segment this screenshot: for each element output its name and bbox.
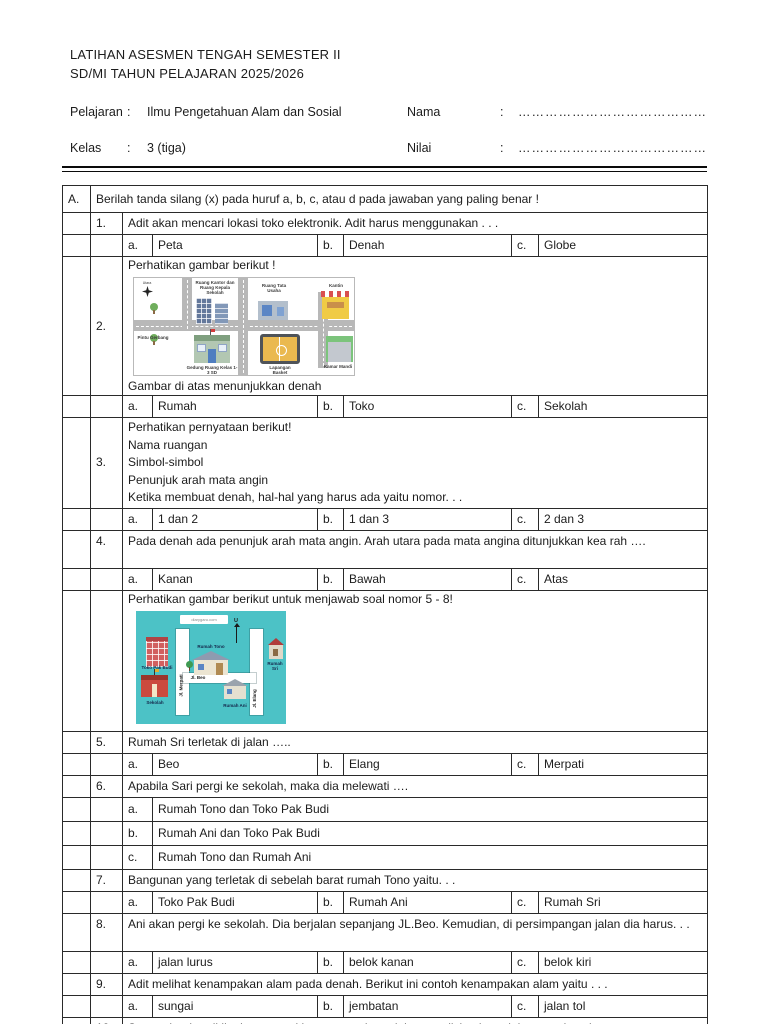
question-row: 6. Apabila Sari pergi ke sekolah, maka d…	[63, 775, 708, 797]
compass-icon: Utara	[140, 281, 154, 298]
document-title-line1: LATIHAN ASESMEN TENGAH SEMESTER II	[70, 45, 707, 64]
question-number: 5.	[91, 731, 123, 753]
options-row: a. Toko Pak Budi b. Rumah Ani c. Rumah S…	[63, 891, 708, 913]
option-text: 1 dan 3	[344, 508, 512, 530]
question-text: Gambar di atas menunjukkan denah	[128, 379, 702, 394]
question-row: 2. Perhatikan gambar berikut ! Utara Rua…	[63, 257, 708, 396]
options-row: a. Rumah Tono dan Toko Pak Budi	[63, 797, 708, 821]
colon: :	[127, 139, 147, 157]
options-row: c. Rumah Tono dan Rumah Ani	[63, 845, 708, 869]
section-row: A. Berilah tanda silang (x) pada huruf a…	[63, 186, 708, 213]
cell-spacer	[63, 775, 91, 797]
option-letter: b.	[318, 995, 344, 1017]
kelas-value: 3 (tiga)	[147, 139, 369, 157]
cell-spacer	[63, 396, 91, 418]
kelas-label: Kelas	[70, 139, 127, 157]
document-title-line2: SD/MI TAHUN PELAJARAN 2025/2026	[70, 64, 707, 83]
cell-spacer	[91, 845, 123, 869]
question-text: Adit akan mencari lokasi toko elektronik…	[123, 213, 708, 235]
cell-spacer	[91, 797, 123, 821]
street-map-image: diarygaru.com U Jl. Merpati Jl. Beo Jl. …	[136, 611, 286, 724]
cell-spacer	[91, 753, 123, 775]
option-text: Sekolah	[539, 396, 708, 418]
cell-spacer	[63, 590, 91, 731]
option-letter: a.	[123, 235, 153, 257]
question-number: 3.	[91, 418, 123, 509]
option-text: Beo	[153, 753, 318, 775]
option-text: Denah	[344, 235, 512, 257]
cell-spacer	[63, 995, 91, 1017]
option-text: Kanan	[153, 568, 318, 590]
section-instruction: Berilah tanda silang (x) pada huruf a, b…	[91, 186, 708, 213]
cell-spacer	[63, 753, 91, 775]
admin-label: Ruang Tata Usaha	[256, 283, 292, 293]
passage-row: Perhatikan gambar berikut untuk menjawab…	[63, 590, 708, 731]
option-text: Rumah Tono dan Rumah Ani	[153, 845, 708, 869]
question-text: Apabila Sari pergi ke sekolah, maka dia …	[123, 775, 708, 797]
admin-building	[258, 301, 288, 320]
question-number: 7.	[91, 869, 123, 891]
question-number: 9.	[91, 973, 123, 995]
options-row: b. Rumah Ani dan Toko Pak Budi	[63, 821, 708, 845]
shop-label: Toko Pak Budi	[140, 665, 174, 670]
road	[182, 278, 192, 331]
option-text: sungai	[153, 995, 318, 1017]
cell-spacer	[91, 396, 123, 418]
office-label: Ruang Kantor dan Ruang Kepala Sekolah	[192, 280, 238, 295]
question-body: Perhatikan pernyataan berikut! Nama ruan…	[123, 418, 708, 509]
question-row: 5. Rumah Sri terletak di jalan …..	[63, 731, 708, 753]
question-number: 10.	[91, 1017, 123, 1024]
cell-spacer	[63, 508, 91, 530]
question-text: Perhatikan gambar berikut !	[128, 258, 702, 273]
question-text-line: Simbol-simbol	[128, 454, 702, 472]
option-letter: c.	[123, 845, 153, 869]
cell-spacer	[63, 845, 91, 869]
compass-star-icon	[142, 286, 153, 297]
option-text: 2 dan 3	[539, 508, 708, 530]
option-text: jalan lurus	[153, 951, 318, 973]
cell-spacer	[91, 235, 123, 257]
pelajaran-label: Pelajaran	[70, 103, 127, 121]
classroom-building	[194, 335, 230, 363]
question-row: 3. Perhatikan pernyataan berikut! Nama r…	[63, 418, 708, 509]
nama-label: Nama	[407, 103, 500, 121]
question-text: Adit melihat kenampakan alam pada denah.…	[123, 973, 708, 995]
colon: :	[127, 103, 147, 121]
question-number: 1.	[91, 213, 123, 235]
house-sri-label: Rumah Sri	[265, 661, 285, 671]
option-letter: a.	[123, 508, 153, 530]
classroom-label: Gedung Ruang Kelas 1-3 SD	[186, 365, 238, 375]
colon: :	[500, 139, 518, 157]
cell-spacer	[63, 951, 91, 973]
option-letter: c.	[512, 995, 539, 1017]
question-text-line: Penunjuk arah mata angin	[128, 472, 702, 490]
option-text: jembatan	[344, 995, 512, 1017]
options-row: a. Peta b. Denah c. Globe	[63, 235, 708, 257]
court-label: Lapangan Basket	[262, 365, 298, 375]
question-body: Perhatikan gambar berikut ! Utara Ruang …	[123, 257, 708, 396]
option-letter: c.	[512, 753, 539, 775]
option-text: Rumah	[153, 396, 318, 418]
question-text: Pada denah ada penunjuk arah mata angin.…	[123, 530, 708, 568]
cell-spacer	[91, 821, 123, 845]
road-merpati	[176, 629, 189, 715]
header-meta-left: Pelajaran : Ilmu Pengetahuan Alam dan So…	[70, 103, 369, 157]
tree-icon	[186, 661, 193, 668]
option-letter: b.	[318, 891, 344, 913]
question-text: Bangunan yang terletak di sebelah barat …	[123, 869, 708, 891]
option-text: belok kiri	[539, 951, 708, 973]
header-meta-right: Nama : ……………………………………. Nilai : …………………………	[407, 103, 707, 157]
question-text: Semua bagian di lingkungan sekitar yang …	[123, 1017, 708, 1024]
cell-spacer	[63, 973, 91, 995]
cell-spacer	[63, 891, 91, 913]
option-letter: b.	[318, 508, 344, 530]
option-text: Rumah Ani	[344, 891, 512, 913]
canteen-label: Kantin	[324, 283, 348, 288]
option-letter: c.	[512, 396, 539, 418]
cell-spacer	[91, 590, 123, 731]
road-merpati-label: Jl. Merpati	[179, 674, 184, 696]
house-tono	[192, 651, 230, 675]
shop-building	[146, 637, 168, 667]
bathroom-label: Kamar Mandi	[322, 364, 354, 369]
options-row: a. Kanan b. Bawah c. Atas	[63, 568, 708, 590]
road-elang-label: Jl. Elang	[252, 689, 257, 708]
option-text: Elang	[344, 753, 512, 775]
cell-spacer	[63, 568, 91, 590]
question-text-line: Nama ruangan	[128, 437, 702, 455]
house-ani	[222, 679, 248, 699]
passage-text: Perhatikan gambar berikut untuk menjawab…	[128, 592, 702, 607]
question-number: 6.	[91, 775, 123, 797]
bathroom-building	[326, 336, 353, 362]
watermark: diarygaru.com	[180, 615, 228, 624]
option-text: Bawah	[344, 568, 512, 590]
road	[238, 278, 248, 375]
cell-spacer	[63, 869, 91, 891]
option-letter: a.	[123, 995, 153, 1017]
question-number: 4.	[91, 530, 123, 568]
option-letter: b.	[123, 821, 153, 845]
gate-label: Pintu Gerbang	[136, 335, 170, 340]
option-text: Toko	[344, 396, 512, 418]
option-letter: a.	[123, 797, 153, 821]
question-text: Ani akan pergi ke sekolah. Dia berjalan …	[123, 913, 708, 951]
pelajaran-value: Ilmu Pengetahuan Alam dan Sosial	[147, 103, 369, 121]
options-row: a. sungai b. jembatan c. jalan tol	[63, 995, 708, 1017]
question-row: 1. Adit akan mencari lokasi toko elektro…	[63, 213, 708, 235]
nilai-fill-line: …………………………………….	[518, 139, 707, 157]
option-text: Rumah Tono dan Toko Pak Budi	[153, 797, 708, 821]
school-map-image: Utara Ruang Kantor dan Ruang Kepala Seko…	[133, 277, 355, 376]
cell-spacer	[63, 821, 91, 845]
house-sri	[267, 638, 284, 659]
option-letter: a.	[123, 396, 153, 418]
option-text: Rumah Ani dan Toko Pak Budi	[153, 821, 708, 845]
cell-spacer	[63, 913, 91, 951]
options-row: a. Rumah b. Toko c. Sekolah	[63, 396, 708, 418]
option-letter: b.	[318, 235, 344, 257]
cell-spacer	[91, 891, 123, 913]
colon: :	[500, 103, 518, 121]
basketball-court	[260, 334, 300, 364]
options-row: a. Beo b. Elang c. Merpati	[63, 753, 708, 775]
header-divider	[62, 166, 707, 172]
cell-spacer	[63, 257, 91, 396]
option-text: Toko Pak Budi	[153, 891, 318, 913]
option-text: belok kanan	[344, 951, 512, 973]
tree-icon	[150, 303, 158, 311]
cell-spacer	[63, 731, 91, 753]
nilai-label: Nilai	[407, 139, 500, 157]
option-text: Rumah Sri	[539, 891, 708, 913]
cell-spacer	[63, 418, 91, 509]
option-letter: a.	[123, 891, 153, 913]
nama-fill-line: …………………………………….	[518, 103, 707, 121]
question-row: 10. Semua bagian di lingkungan sekitar y…	[63, 1017, 708, 1024]
office-building	[215, 303, 228, 324]
office-building	[196, 298, 212, 324]
question-text: Rumah Sri terletak di jalan …..	[123, 731, 708, 753]
question-number: 8.	[91, 913, 123, 951]
question-number: 2.	[91, 257, 123, 396]
option-letter: b.	[318, 568, 344, 590]
question-text-line: Perhatikan pernyataan berikut!	[128, 419, 702, 437]
option-letter: a.	[123, 951, 153, 973]
question-row: 4. Pada denah ada penunjuk arah mata ang…	[63, 530, 708, 568]
school-building	[141, 675, 168, 697]
cell-spacer	[91, 568, 123, 590]
cell-spacer	[63, 530, 91, 568]
house-tono-label: Rumah Tono	[192, 644, 230, 649]
option-text: Peta	[153, 235, 318, 257]
option-letter: b.	[318, 396, 344, 418]
question-row: 8. Ani akan pergi ke sekolah. Dia berjal…	[63, 913, 708, 951]
house-ani-label: Rumah Ani	[220, 703, 250, 708]
header-meta: Pelajaran : Ilmu Pengetahuan Alam dan So…	[70, 103, 707, 157]
school-label: Sekolah	[142, 700, 168, 705]
road-beo-label: Jl. Beo	[188, 675, 208, 680]
option-letter: a.	[123, 568, 153, 590]
cell-spacer	[91, 995, 123, 1017]
options-row: a. 1 dan 2 b. 1 dan 3 c. 2 dan 3	[63, 508, 708, 530]
option-text: 1 dan 2	[153, 508, 318, 530]
option-text: Globe	[539, 235, 708, 257]
option-letter: c.	[512, 508, 539, 530]
option-letter: c.	[512, 891, 539, 913]
option-text: jalan tol	[539, 995, 708, 1017]
cell-spacer	[63, 213, 91, 235]
question-row: 7. Bangunan yang terletak di sebelah bar…	[63, 869, 708, 891]
north-arrow-icon	[236, 627, 237, 643]
cell-spacer	[63, 235, 91, 257]
question-row: 9. Adit melihat kenampakan alam pada den…	[63, 973, 708, 995]
north-indicator: U	[234, 619, 238, 624]
option-letter: b.	[318, 753, 344, 775]
option-text: Atas	[539, 568, 708, 590]
option-letter: c.	[512, 235, 539, 257]
cell-spacer	[91, 951, 123, 973]
passage-body: Perhatikan gambar berikut untuk menjawab…	[123, 590, 708, 731]
exam-document-page: LATIHAN ASESMEN TENGAH SEMESTER II SD/MI…	[0, 0, 768, 1024]
cell-spacer	[63, 1017, 91, 1024]
option-letter: c.	[512, 568, 539, 590]
option-letter: a.	[123, 753, 153, 775]
cell-spacer	[91, 508, 123, 530]
section-letter: A.	[63, 186, 91, 213]
option-letter: c.	[512, 951, 539, 973]
options-row: a. jalan lurus b. belok kanan c. belok k…	[63, 951, 708, 973]
cell-spacer	[63, 797, 91, 821]
question-text-line: Ketika membuat denah, hal-hal yang harus…	[128, 489, 702, 507]
option-letter: b.	[318, 951, 344, 973]
exam-table: A. Berilah tanda silang (x) pada huruf a…	[62, 185, 708, 1024]
canteen-building	[322, 291, 349, 319]
option-text: Merpati	[539, 753, 708, 775]
